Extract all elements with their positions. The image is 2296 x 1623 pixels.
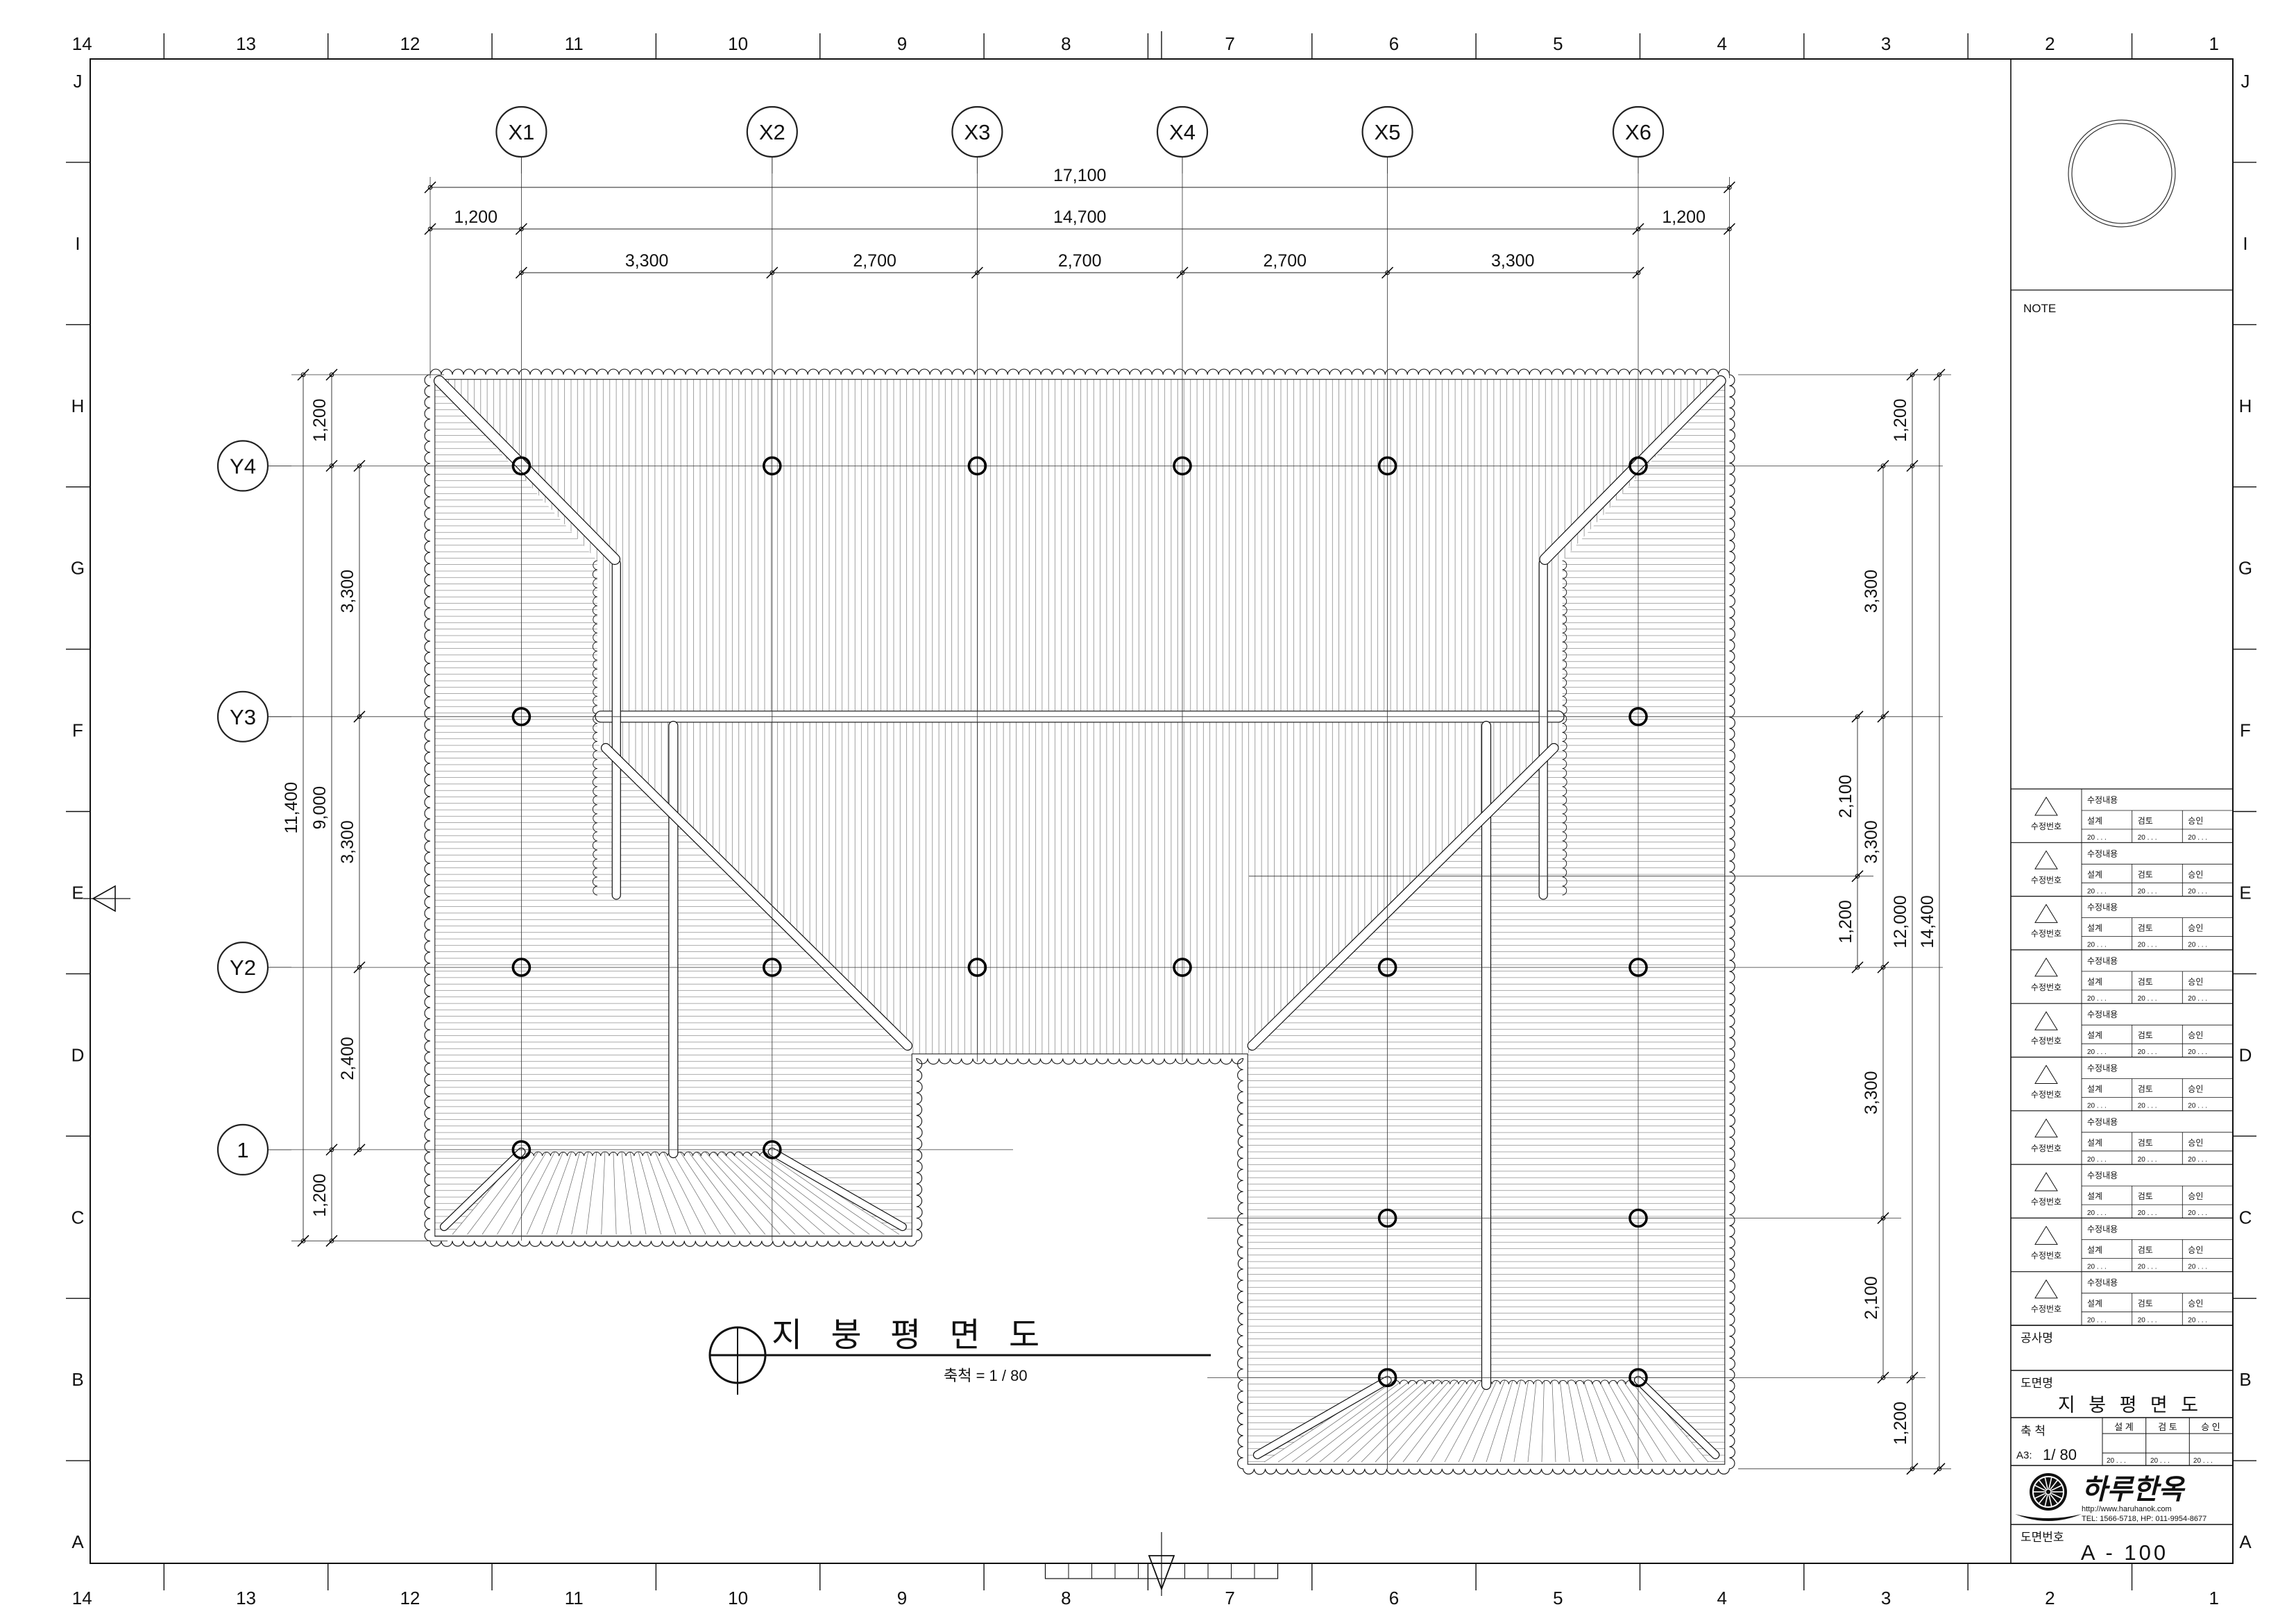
revision-content-label: 수정내용 — [2087, 1064, 2118, 1073]
revision-sign-label: 승인 — [2188, 1299, 2203, 1309]
review-label: 검 토 — [2158, 1422, 2177, 1432]
dim-label: 2,700 — [1058, 251, 1102, 271]
border-letter: D — [71, 1044, 85, 1065]
revision-date: 20 . . . — [2138, 1209, 2157, 1217]
border-letter: D — [2239, 1044, 2252, 1065]
revision-row: 수정번호수정내용설계검토승인20 . . .20 . . .20 . . . — [2011, 842, 2233, 896]
revision-number-label: 수정번호 — [2031, 983, 2061, 992]
plan-title: 지 붕 평 면 도 — [772, 1317, 1049, 1354]
revision-date: 20 . . . — [2188, 1048, 2207, 1056]
revision-date: 20 . . . — [2188, 1317, 2207, 1325]
revision-date: 20 . . . — [2087, 887, 2107, 895]
revision-sign-label: 승인 — [2188, 869, 2203, 879]
design-date: 20 . . . — [2107, 1457, 2126, 1465]
revision-date: 20 . . . — [2138, 834, 2157, 842]
revision-sign-label: 검토 — [2138, 1030, 2153, 1040]
drawing-number-label: 도면번호 — [2021, 1531, 2064, 1544]
revision-sign-label: 설계 — [2087, 1299, 2102, 1309]
dim-label: 3,300 — [1862, 570, 1881, 613]
revision-row: 수정번호수정내용설계검토승인20 . . .20 . . .20 . . . — [2011, 1057, 2233, 1111]
border-letter: G — [71, 558, 85, 579]
border-number: 5 — [1553, 33, 1563, 54]
revision-sign-label: 설계 — [2087, 1138, 2102, 1148]
revision-sign-label: 검토 — [2138, 924, 2153, 933]
revision-date: 20 . . . — [2188, 1156, 2207, 1164]
border-letter: A — [71, 1531, 84, 1552]
revision-date: 20 . . . — [2087, 834, 2107, 842]
border-number: 13 — [236, 1588, 256, 1608]
title-block: NOTE 수정번호수정내용설계검토승인20 . . .20 . . .20 . … — [2011, 59, 2233, 1565]
revision-number-label: 수정번호 — [2031, 822, 2061, 831]
revision-triangle-icon — [2035, 905, 2057, 923]
border-number: 11 — [565, 1588, 584, 1608]
revision-triangle-icon — [2035, 1066, 2057, 1084]
revision-date: 20 . . . — [2087, 1317, 2107, 1325]
cad-canvas: 14141313121211111010998877665544332211JJ… — [0, 0, 2296, 1623]
dim-label: 3,300 — [1491, 251, 1535, 271]
revision-sign-label: 설계 — [2087, 977, 2102, 987]
border-number: 9 — [897, 1588, 907, 1608]
border-number: 4 — [1717, 1588, 1726, 1608]
revision-row: 수정번호수정내용설계검토승인20 . . .20 . . .20 . . . — [2011, 1003, 2233, 1057]
company-logo-name: 하루한옥 — [2082, 1473, 2186, 1506]
revision-date: 20 . . . — [2188, 1103, 2207, 1110]
revision-number-label: 수정번호 — [2031, 1250, 2061, 1260]
dim-label: 17,100 — [1053, 166, 1106, 185]
border-letter: E — [2239, 883, 2251, 903]
border-number: 14 — [72, 1588, 92, 1608]
left-descending-ridge — [612, 559, 620, 899]
dim-label: 1,200 — [310, 1173, 330, 1217]
revision-sign-label: 승인 — [2188, 924, 2203, 933]
dim-label: 2,400 — [338, 1037, 357, 1080]
border-number: 7 — [1225, 1588, 1234, 1608]
dim-label: 3,300 — [1862, 1071, 1881, 1115]
grid-bubble-y-label: Y4 — [230, 454, 256, 478]
drawing-name-label: 도면명 — [2021, 1377, 2053, 1390]
revision-date: 20 . . . — [2087, 1103, 2107, 1110]
revision-triangle-icon — [2035, 958, 2057, 976]
revision-triangle-icon — [2035, 1173, 2057, 1191]
revision-date: 20 . . . — [2087, 1048, 2107, 1056]
revision-content-label: 수정내용 — [2087, 1171, 2118, 1180]
left-wing-ridge — [669, 722, 678, 1158]
revision-triangle-icon — [2035, 1280, 2057, 1298]
revision-sign-label: 검토 — [2138, 869, 2153, 879]
dim-label: 3,300 — [625, 251, 669, 271]
revision-sign-label: 승인 — [2188, 1191, 2203, 1201]
project-name-label: 공사명 — [2021, 1332, 2053, 1345]
border-number: 10 — [728, 33, 748, 54]
revision-date: 20 . . . — [2188, 1263, 2207, 1271]
border-letter: I — [2243, 233, 2247, 254]
grid-bubble-x-label: X4 — [1169, 120, 1196, 144]
dim-label: 2,700 — [1264, 251, 1307, 271]
review-date: 20 . . . — [2150, 1457, 2170, 1465]
revision-date: 20 . . . — [2087, 1209, 2107, 1217]
revision-sign-label: 검토 — [2138, 1191, 2153, 1201]
right-descending-ridge — [1539, 559, 1547, 899]
dim-label: 14,700 — [1053, 207, 1106, 227]
company-url: http://www.haruhanok.com — [2082, 1505, 2172, 1513]
revision-sign-label: 승인 — [2188, 1085, 2203, 1094]
dim-label: 1,200 — [1891, 1402, 1910, 1445]
company-logo-icon — [2015, 1473, 2082, 1521]
revision-row: 수정번호수정내용설계검토승인20 . . .20 . . .20 . . . — [2011, 1272, 2233, 1325]
revision-date: 20 . . . — [2188, 995, 2207, 1003]
grid-bubble-x-label: X3 — [964, 120, 990, 144]
border-number: 13 — [236, 33, 256, 54]
revision-triangle-icon — [2035, 1119, 2057, 1137]
revision-number-label: 수정번호 — [2031, 875, 2061, 885]
border-number: 2 — [2045, 33, 2055, 54]
dim-label: 3,300 — [338, 820, 357, 864]
revision-table: 수정번호수정내용설계검토승인20 . . .20 . . .20 . . .수정… — [2011, 789, 2233, 1325]
scale-sheet: A3: — [2016, 1450, 2032, 1461]
revision-number-label: 수정번호 — [2031, 1144, 2061, 1153]
border-number: 11 — [565, 33, 584, 54]
border-number: 10 — [728, 1588, 748, 1608]
design-label: 설 계 — [2114, 1422, 2134, 1432]
border-number: 14 — [72, 33, 92, 54]
approve-date: 20 . . . — [2193, 1457, 2213, 1465]
revision-sign-label: 설계 — [2087, 816, 2102, 826]
revision-sign-label: 검토 — [2138, 816, 2153, 826]
dim-label: 3,300 — [1862, 820, 1881, 864]
revision-sign-label: 설계 — [2087, 1030, 2102, 1040]
border-number: 8 — [1061, 1588, 1071, 1608]
revision-row: 수정번호수정내용설계검토승인20 . . .20 . . .20 . . . — [2011, 1111, 2233, 1164]
revision-sign-label: 승인 — [2188, 977, 2203, 987]
plan-title-group: 지 붕 평 면 도 축척 = 1 / 80 — [710, 1317, 1211, 1395]
border-number: 2 — [2045, 1588, 2055, 1608]
border-number: 1 — [2209, 1588, 2219, 1608]
border-letter: C — [2239, 1207, 2252, 1227]
revision-sign-label: 승인 — [2188, 1138, 2203, 1148]
grid-bubble-y-label: 1 — [237, 1138, 248, 1162]
revision-sign-label: 검토 — [2138, 1299, 2153, 1309]
revision-content-label: 수정내용 — [2087, 956, 2118, 966]
revision-date: 20 . . . — [2188, 887, 2207, 895]
revision-content-label: 수정내용 — [2087, 849, 2118, 858]
border-letter: H — [2239, 396, 2252, 416]
stamp-circle-outer — [2068, 120, 2175, 227]
revision-sign-label: 검토 — [2138, 1138, 2153, 1148]
revision-content-label: 수정내용 — [2087, 795, 2118, 805]
dim-label: 2,100 — [1862, 1276, 1881, 1320]
revision-sign-label: 승인 — [2188, 816, 2203, 826]
drawing-number: A - 100 — [2081, 1540, 2168, 1565]
border-number: 5 — [1553, 1588, 1563, 1608]
revision-sign-label: 검토 — [2138, 1245, 2153, 1255]
revision-content-label: 수정내용 — [2087, 1224, 2118, 1234]
dim-label: 1,200 — [1891, 398, 1910, 442]
plan-scale-note: 축척 = 1 / 80 — [944, 1367, 1028, 1384]
roof-plan — [425, 369, 1735, 1475]
border-letter: B — [71, 1369, 83, 1390]
drawing-sheet: 14141313121211111010998877665544332211JJ… — [0, 0, 2296, 1623]
revision-date: 20 . . . — [2138, 887, 2157, 895]
dim-label: 1,200 — [1662, 207, 1706, 227]
revision-date: 20 . . . — [2188, 834, 2207, 842]
border-number: 6 — [1389, 33, 1399, 54]
stamp-circle-inner — [2072, 124, 2172, 223]
revision-date: 20 . . . — [2138, 942, 2157, 949]
revision-date: 20 . . . — [2188, 1209, 2207, 1217]
dim-label: 3,300 — [338, 570, 357, 613]
border-letter: B — [2239, 1369, 2251, 1390]
dim-label: 1,200 — [454, 207, 498, 227]
revision-sign-label: 승인 — [2188, 1030, 2203, 1040]
revision-row: 수정번호수정내용설계검토승인20 . . .20 . . .20 . . . — [2011, 789, 2233, 842]
revision-sign-label: 설계 — [2087, 1191, 2102, 1201]
revision-triangle-icon — [2035, 851, 2057, 869]
revision-row: 수정번호수정내용설계검토승인20 . . .20 . . .20 . . . — [2011, 950, 2233, 1003]
logo-swoosh — [2015, 1514, 2082, 1521]
dim-label: 9,000 — [310, 786, 330, 830]
border-letter: A — [2239, 1531, 2252, 1552]
dim-label: 2,100 — [1836, 774, 1855, 818]
revision-date: 20 . . . — [2138, 1317, 2157, 1325]
grid-bubble-x-label: X1 — [508, 120, 534, 144]
revision-content-label: 수정내용 — [2087, 903, 2118, 912]
revision-date: 20 . . . — [2087, 1156, 2107, 1164]
border-letter: H — [71, 396, 85, 416]
revision-number-label: 수정번호 — [2031, 1036, 2061, 1046]
note-label: NOTE — [2023, 302, 2056, 315]
revision-sign-label: 설계 — [2087, 1245, 2102, 1255]
dim-label: 1,200 — [1836, 900, 1855, 944]
dim-label: 1,200 — [310, 398, 330, 442]
revision-triangle-icon — [2035, 1012, 2057, 1030]
revision-date: 20 . . . — [2138, 1103, 2157, 1110]
revision-content-label: 수정내용 — [2087, 1117, 2118, 1127]
border-number: 8 — [1061, 33, 1071, 54]
revision-date: 20 . . . — [2188, 942, 2207, 949]
revision-date: 20 . . . — [2087, 1263, 2107, 1271]
revision-date: 20 . . . — [2138, 1048, 2157, 1056]
scale-label: 축 척 — [2021, 1425, 2046, 1438]
revision-date: 20 . . . — [2138, 1156, 2157, 1164]
revision-number-label: 수정번호 — [2031, 1305, 2061, 1314]
revision-content-label: 수정내용 — [2087, 1010, 2118, 1019]
revision-date: 20 . . . — [2138, 1263, 2157, 1271]
revision-sign-label: 설계 — [2087, 869, 2102, 879]
grid-bubble-y-label: Y2 — [230, 955, 256, 980]
revision-triangle-icon — [2035, 797, 2057, 815]
dim-label: 14,400 — [1918, 895, 1937, 948]
revision-date: 20 . . . — [2087, 942, 2107, 949]
border-number: 12 — [400, 33, 420, 54]
revision-row: 수정번호수정내용설계검토승인20 . . .20 . . .20 . . . — [2011, 1164, 2233, 1218]
revision-sign-label: 설계 — [2087, 924, 2102, 933]
grid-bubble-x-label: X6 — [1625, 120, 1651, 144]
drawing-name: 지 붕 평 면 도 — [2058, 1395, 2202, 1416]
border-number: 12 — [400, 1588, 420, 1608]
revision-sign-label: 검토 — [2138, 1085, 2153, 1094]
grid-bubble-y-label: Y3 — [230, 705, 256, 729]
border-number: 6 — [1389, 1588, 1399, 1608]
revision-number-label: 수정번호 — [2031, 929, 2061, 939]
border-letter: J — [74, 71, 83, 92]
revision-sign-label: 설계 — [2087, 1085, 2102, 1094]
border-number: 9 — [897, 33, 907, 54]
revision-sign-label: 검토 — [2138, 977, 2153, 987]
scale-value: 1/ 80 — [2043, 1446, 2077, 1463]
dim-label: 12,000 — [1891, 895, 1910, 948]
border-number: 1 — [2209, 33, 2219, 54]
border-letter: C — [71, 1207, 85, 1227]
approve-label: 승 인 — [2201, 1422, 2220, 1432]
revision-date: 20 . . . — [2087, 995, 2107, 1003]
revision-row: 수정번호수정내용설계검토승인20 . . .20 . . .20 . . . — [2011, 897, 2233, 950]
border-letter: E — [71, 883, 83, 903]
border-letter: F — [2240, 720, 2251, 741]
grid-bubble-x-label: X2 — [759, 120, 785, 144]
border-letter: I — [75, 233, 80, 254]
company-tel: TEL: 1566-5718, HP: 011-9954-8677 — [2082, 1515, 2206, 1523]
revision-number-label: 수정번호 — [2031, 1090, 2061, 1100]
border-number: 4 — [1717, 33, 1726, 54]
border-number: 7 — [1225, 33, 1234, 54]
revision-date: 20 . . . — [2138, 995, 2157, 1003]
border-number: 3 — [1881, 33, 1891, 54]
border-letter: J — [2241, 71, 2250, 92]
revision-content-label: 수정내용 — [2087, 1278, 2118, 1288]
dim-label: 2,700 — [853, 251, 896, 271]
revision-row: 수정번호수정내용설계검토승인20 . . .20 . . .20 . . . — [2011, 1218, 2233, 1271]
border-number: 3 — [1881, 1588, 1891, 1608]
grid-bubble-x-label: X5 — [1375, 120, 1401, 144]
revision-number-label: 수정번호 — [2031, 1197, 2061, 1207]
dim-label: 11,400 — [282, 782, 301, 834]
border-letter: G — [2238, 558, 2252, 579]
revision-triangle-icon — [2035, 1226, 2057, 1244]
revision-sign-label: 승인 — [2188, 1245, 2203, 1255]
border-letter: F — [72, 720, 83, 741]
